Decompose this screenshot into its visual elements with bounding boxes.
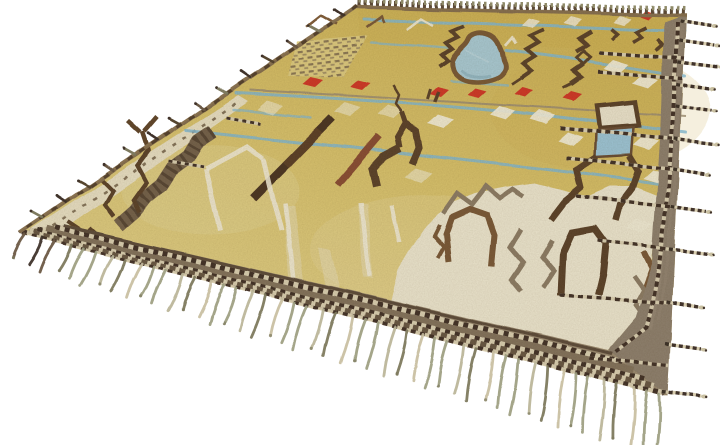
- rug: [0, 0, 720, 445]
- texture-overlay: [0, 0, 720, 445]
- photo-stage: [0, 0, 720, 445]
- rug-photo: [0, 0, 720, 445]
